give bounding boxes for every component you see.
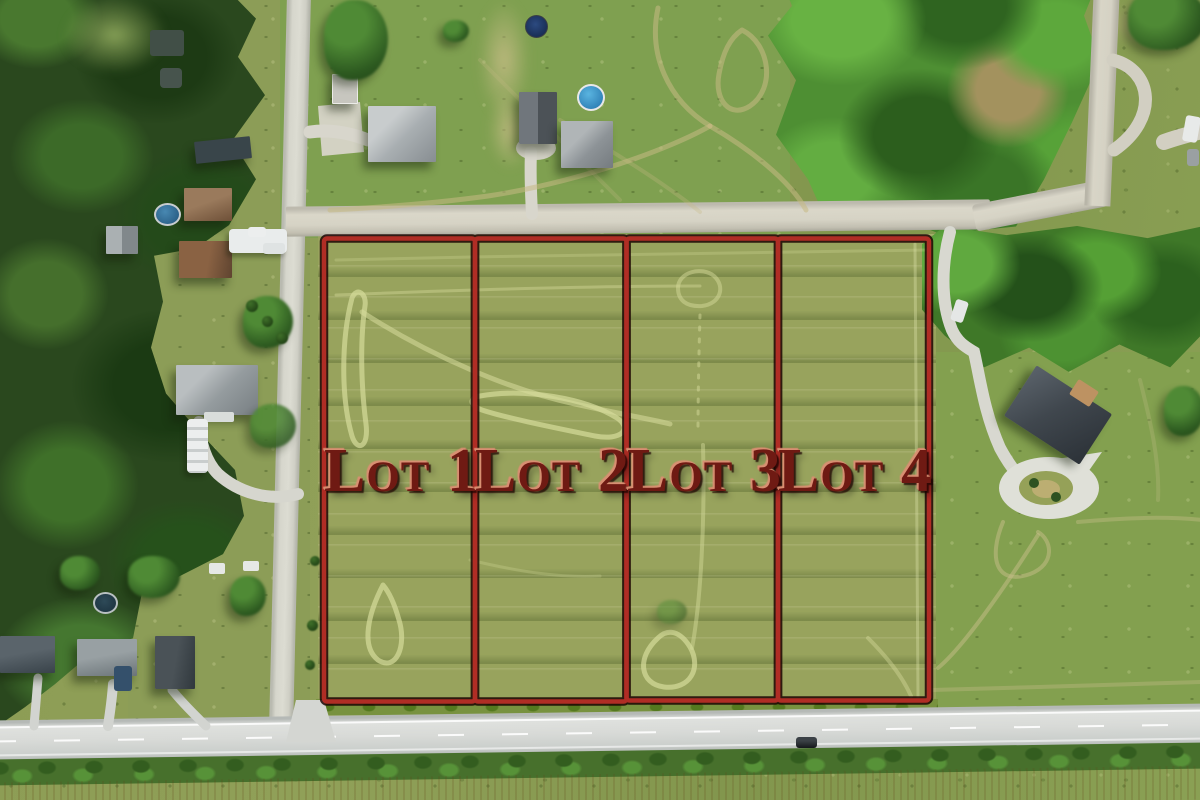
aerial-photo-scene: Lot 1 Lot 2 Lot 3 Lot 4: [0, 0, 1200, 800]
lot-4-label: Lot 4: [778, 438, 929, 504]
lot-boundaries: [0, 0, 1200, 800]
lot-2-label: Lot 2: [475, 438, 627, 504]
lot-1-label: Lot 1: [324, 438, 475, 504]
lot-3-label: Lot 3: [627, 438, 778, 504]
